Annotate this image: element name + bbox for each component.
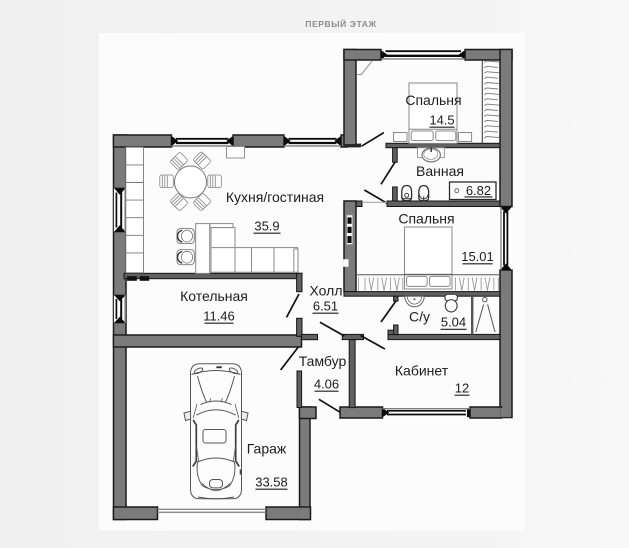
svg-text:Кабинет: Кабинет <box>395 363 449 379</box>
svg-text:Спальня: Спальня <box>398 211 454 227</box>
svg-text:Холл: Холл <box>310 283 343 299</box>
svg-text:Тамбур: Тамбур <box>299 353 347 369</box>
svg-text:35.9: 35.9 <box>254 219 279 234</box>
svg-text:11.46: 11.46 <box>203 309 235 324</box>
svg-text:Ванная: Ванная <box>416 163 464 179</box>
svg-text:6.51: 6.51 <box>313 299 338 314</box>
svg-text:Спальня: Спальня <box>405 92 461 108</box>
svg-text:Кухня/гостиная: Кухня/гостиная <box>226 189 324 205</box>
svg-text:15.01: 15.01 <box>461 249 494 264</box>
svg-text:Гараж: Гараж <box>247 441 287 457</box>
svg-text:ПЕРВЫЙ ЭТАЖ: ПЕРВЫЙ ЭТАЖ <box>305 18 377 29</box>
svg-text:6.82: 6.82 <box>466 183 491 198</box>
svg-text:Котельная: Котельная <box>180 288 248 304</box>
svg-text:14.5: 14.5 <box>429 113 454 128</box>
svg-text:5.04: 5.04 <box>441 315 466 330</box>
svg-text:33.58: 33.58 <box>255 475 288 490</box>
svg-text:С/у: С/у <box>409 309 430 325</box>
svg-text:4.06: 4.06 <box>314 377 339 392</box>
svg-text:12: 12 <box>455 381 469 396</box>
